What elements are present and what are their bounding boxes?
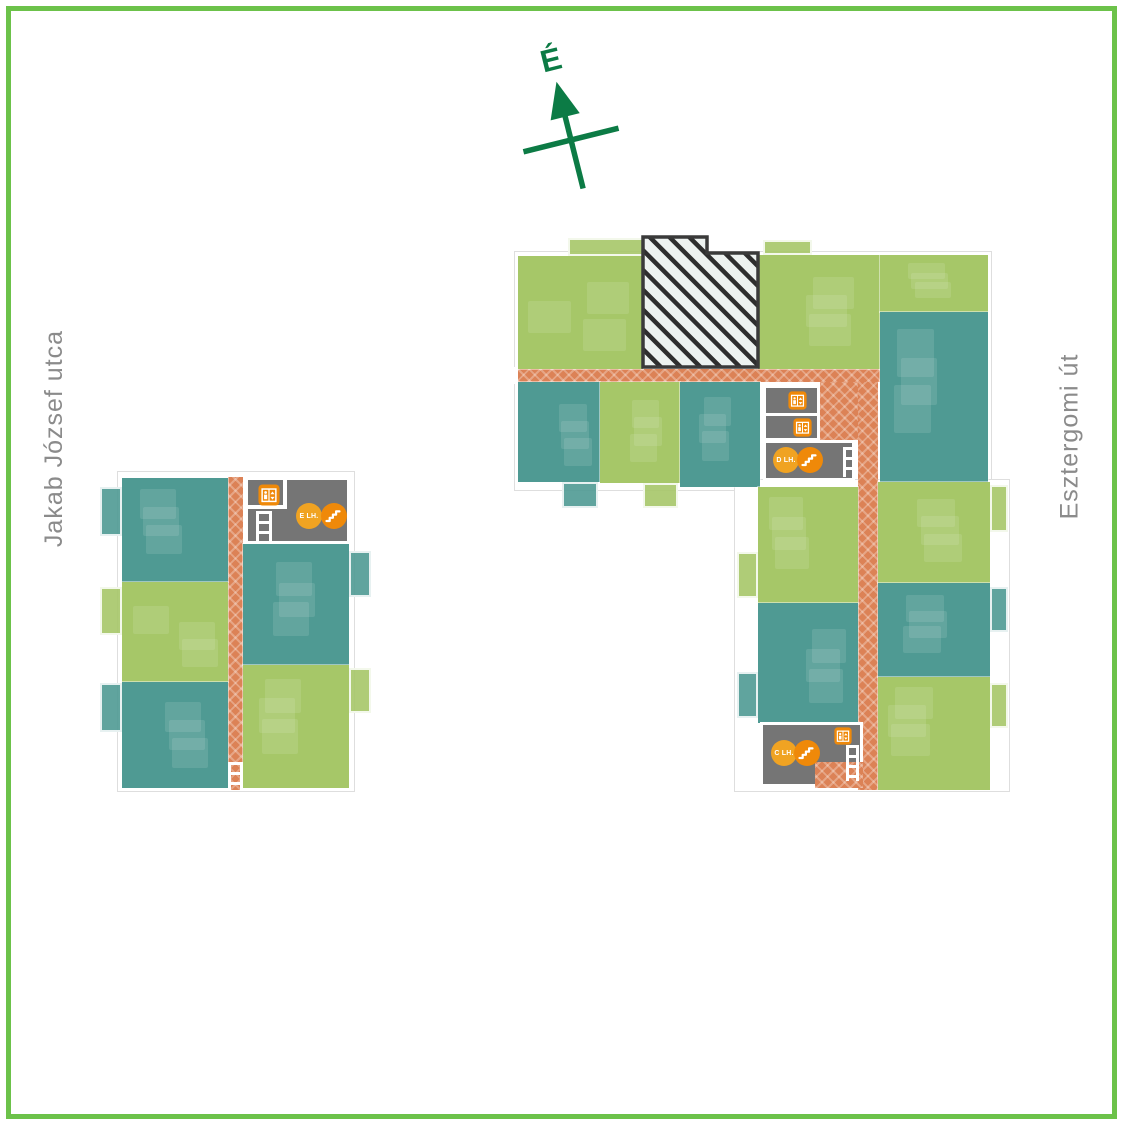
wall xyxy=(283,480,287,508)
apartment-unit[interactable] xyxy=(518,382,600,482)
elevator-icon xyxy=(258,484,280,506)
balcony xyxy=(349,551,371,597)
apartment-unit[interactable] xyxy=(122,582,228,682)
furniture xyxy=(702,431,729,460)
furniture xyxy=(262,719,298,753)
furniture xyxy=(813,277,854,309)
stairs-icon xyxy=(321,503,347,529)
balcony xyxy=(100,683,122,732)
furniture xyxy=(279,583,315,617)
stairs-icon xyxy=(797,447,823,473)
apartment-unit[interactable] xyxy=(878,677,990,790)
staircase-label-badge: D LH. xyxy=(773,447,799,473)
apartment-unit[interactable] xyxy=(758,255,880,369)
stairs-glyph xyxy=(256,511,272,543)
balcony xyxy=(737,552,758,598)
apartment-unit[interactable] xyxy=(122,478,228,582)
stairs-icon xyxy=(794,740,820,766)
balcony xyxy=(100,487,122,536)
balcony xyxy=(990,485,1008,532)
stairs-glyph xyxy=(843,447,856,477)
staircase-label: D LH. xyxy=(776,457,795,464)
apartment-unit[interactable] xyxy=(878,482,990,583)
balcony xyxy=(763,240,812,255)
furniture xyxy=(133,606,169,634)
apartment-unit[interactable] xyxy=(880,255,988,312)
wall xyxy=(509,367,518,384)
balcony xyxy=(990,683,1008,728)
apartment-unit[interactable] xyxy=(758,487,858,603)
elevator-icon xyxy=(793,418,812,437)
apartment-unit[interactable] xyxy=(680,382,760,487)
stairs-glyph xyxy=(228,762,243,790)
furniture xyxy=(172,738,208,768)
staircase-label-badge: E LH. xyxy=(296,503,322,529)
balcony xyxy=(737,672,758,718)
balcony xyxy=(990,587,1008,632)
furniture xyxy=(634,417,661,445)
staircase-label: E LH. xyxy=(300,513,319,520)
furniture xyxy=(809,669,843,703)
balcony xyxy=(568,238,645,256)
furniture xyxy=(901,358,938,406)
furniture xyxy=(924,534,962,562)
furniture xyxy=(775,537,809,569)
furniture xyxy=(895,687,933,719)
apartment-unit[interactable] xyxy=(600,382,680,483)
furniture xyxy=(915,282,952,298)
furniture xyxy=(564,438,592,466)
site-plan-page: { "frame": { "border_color": "#6cc24a" }… xyxy=(0,0,1123,1125)
furniture xyxy=(587,282,630,314)
wall xyxy=(765,413,818,416)
corridor xyxy=(820,382,858,440)
balcony xyxy=(349,668,371,713)
apartment-unit[interactable] xyxy=(880,312,988,482)
corridor xyxy=(228,477,243,790)
corridor xyxy=(518,369,880,382)
apartment-unit[interactable] xyxy=(243,665,349,788)
furniture xyxy=(891,724,929,756)
furniture xyxy=(812,629,846,663)
apartment-unit[interactable] xyxy=(878,583,990,677)
elevator-icon xyxy=(788,391,807,410)
balcony xyxy=(100,587,122,635)
staircase-label: C LH. xyxy=(774,750,793,757)
apartment-unit[interactable] xyxy=(758,603,858,723)
furniture xyxy=(809,314,850,346)
furniture xyxy=(909,611,947,637)
furniture xyxy=(265,679,301,713)
balcony xyxy=(643,483,678,508)
apartment-unit[interactable] xyxy=(518,256,643,369)
balcony xyxy=(562,482,598,508)
furniture xyxy=(528,301,571,333)
furniture xyxy=(146,525,182,554)
apartment-unit[interactable] xyxy=(122,682,228,788)
apartment-unit[interactable] xyxy=(243,544,349,665)
furniture xyxy=(704,397,731,426)
furniture xyxy=(182,639,218,667)
floor-plan-canvas: E LH. D LH. C LH. xyxy=(0,0,1123,1125)
stairs-glyph xyxy=(846,745,859,781)
furniture xyxy=(583,319,626,351)
elevator-icon xyxy=(834,727,852,745)
